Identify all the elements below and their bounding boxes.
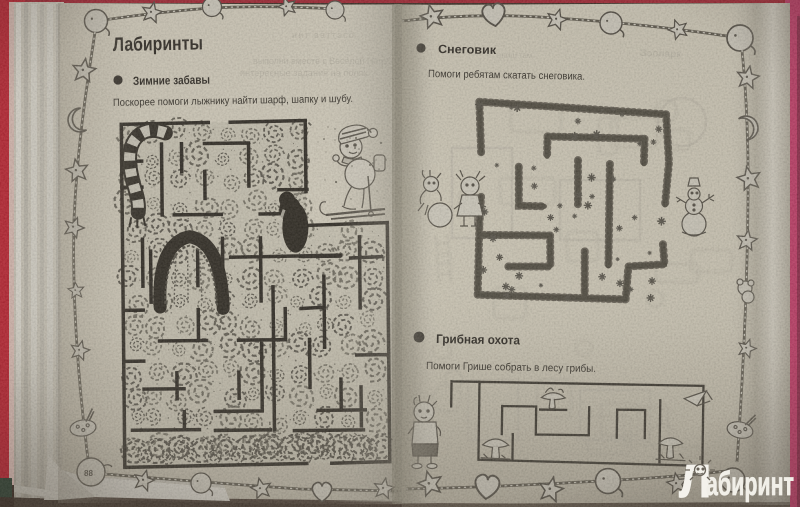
svg-text:абиринт: абиринт — [706, 465, 794, 502]
